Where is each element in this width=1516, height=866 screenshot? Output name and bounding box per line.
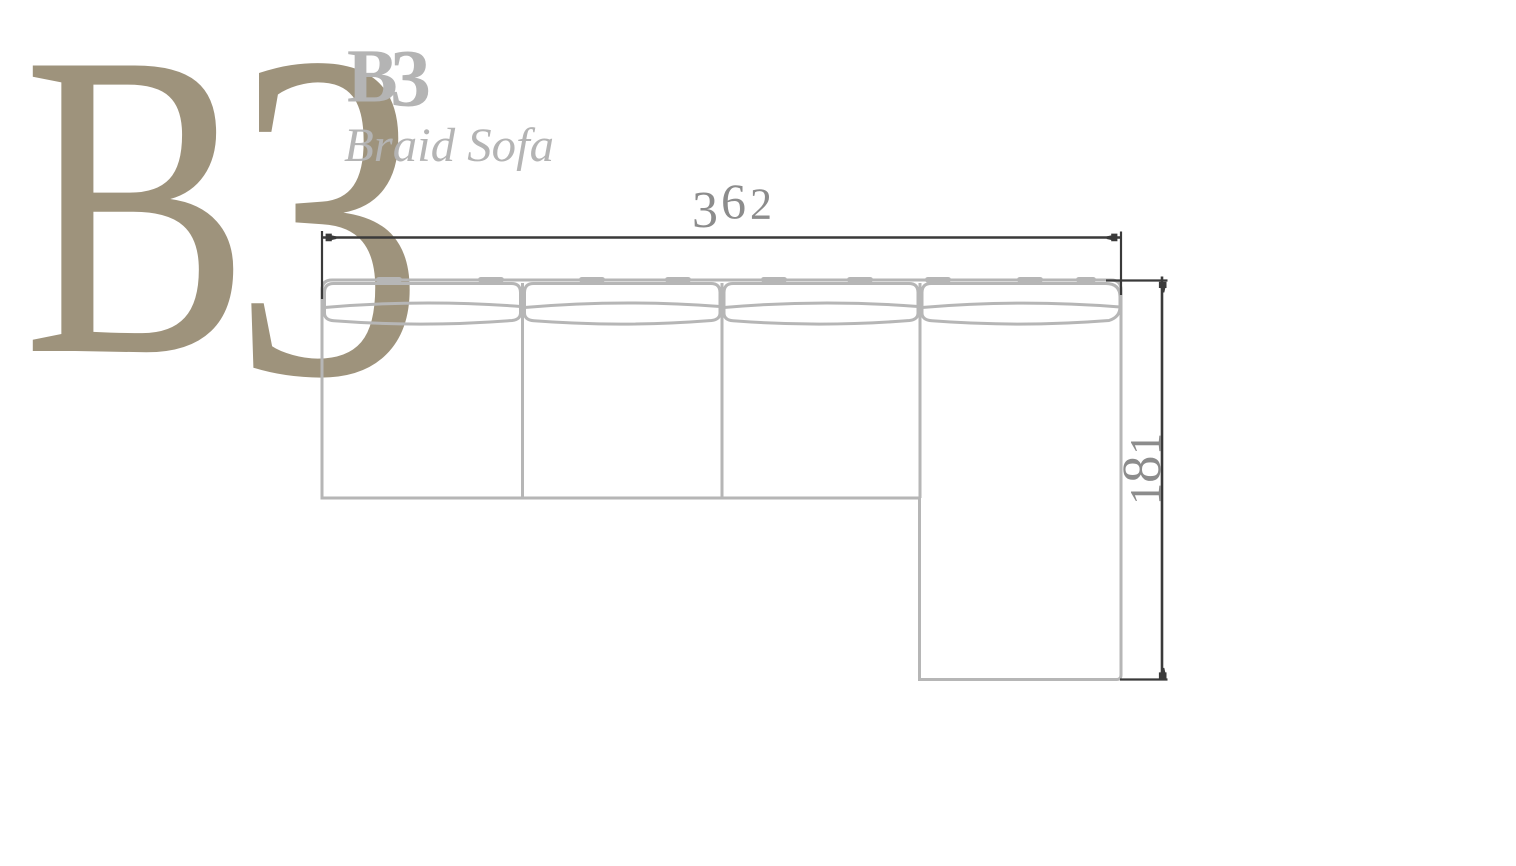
svg-text:B: B <box>23 0 250 446</box>
svg-text:3: 3 <box>692 182 718 239</box>
svg-text:8: 8 <box>1111 456 1172 484</box>
svg-text:6: 6 <box>721 173 746 229</box>
svg-text:1: 1 <box>1121 483 1170 505</box>
svg-text:Braid Sofa: Braid Sofa <box>344 119 554 172</box>
svg-text:2: 2 <box>750 180 772 229</box>
svg-text:3: 3 <box>390 33 431 124</box>
svg-text:1: 1 <box>1121 433 1170 455</box>
